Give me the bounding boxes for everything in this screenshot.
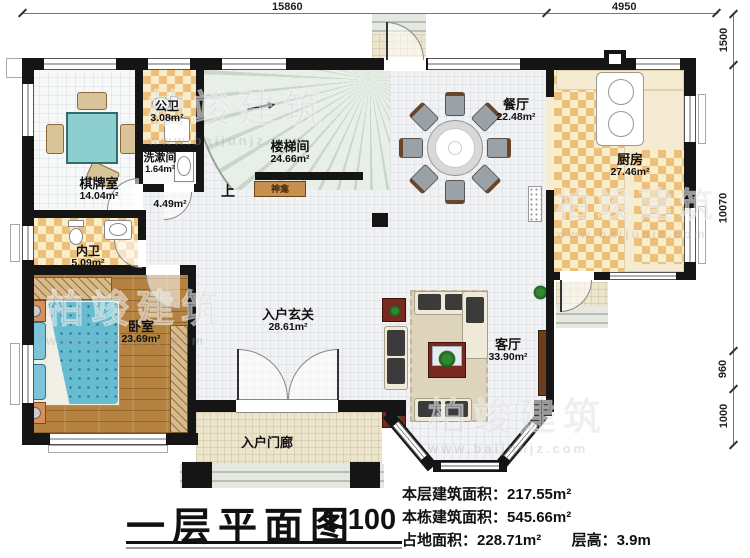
sink-bowl xyxy=(608,111,634,137)
dim-line-right xyxy=(733,13,734,445)
room-label-porch: 入户门廊 xyxy=(241,436,293,450)
washroom-sink-bowl xyxy=(177,156,191,176)
room-label-kitchen: 厨房 27.46m² xyxy=(610,153,649,178)
room-label-stairwell: 楼梯间 24.66m² xyxy=(270,140,309,165)
wall-bath-divider xyxy=(135,144,204,152)
room-label-living: 客厅 33.90m² xyxy=(488,338,527,363)
window-bedroom-left xyxy=(22,345,34,403)
room-label-dining: 餐厅 22.48m² xyxy=(496,98,535,123)
room-label-mahjong: 棋牌室 14.04m² xyxy=(79,177,118,202)
front-door-leaf xyxy=(337,349,339,400)
wall-bath-left xyxy=(135,68,143,184)
sill xyxy=(698,94,706,144)
mahjong-chair xyxy=(46,124,64,154)
dim-top-right: 4950 xyxy=(612,1,636,13)
flue-inner xyxy=(609,54,621,64)
window-dining-top xyxy=(428,58,520,70)
window-bath-top xyxy=(148,58,190,70)
front-door-leaf xyxy=(237,349,239,400)
stat-3b-value: 3.9m xyxy=(617,532,651,549)
stairs-beam xyxy=(255,172,363,180)
washroom-door-opening xyxy=(164,184,194,192)
mahjong-chair xyxy=(77,92,107,110)
sofa-cushion xyxy=(445,401,468,417)
closet xyxy=(170,325,188,433)
stat-3a-value: 228.71m² xyxy=(477,532,541,549)
window-kitchen-right1 xyxy=(684,96,696,142)
stat-1-label: 本层建筑面积： xyxy=(402,486,507,503)
bay-window-bottom xyxy=(441,462,499,470)
plant xyxy=(389,305,401,317)
stat-line-2: 本栋建筑面积：545.66m² xyxy=(402,506,571,527)
window-kitchen-right2 xyxy=(684,208,696,262)
column xyxy=(372,213,388,227)
wall-privbath-right xyxy=(138,218,146,240)
sofa-cushion xyxy=(466,297,484,323)
dim-line-top xyxy=(22,13,718,14)
room-label-foyer: 入户玄关 28.61m² xyxy=(262,308,314,333)
front-door-opening xyxy=(236,399,338,413)
sofa-cushion xyxy=(387,358,405,384)
porch-column-right xyxy=(350,462,380,488)
bedroom-door-opening xyxy=(146,265,180,275)
bath-sink-bowl xyxy=(109,223,127,236)
dim-right-3: 960 xyxy=(717,360,729,378)
wall-kitchen-divider-top xyxy=(546,60,554,97)
stat-2-value: 545.66m² xyxy=(507,509,571,526)
wall-bath-right xyxy=(196,68,204,192)
room-label-private-bath: 内卫 5.09m² xyxy=(71,245,104,269)
room-label-washroom: 洗漱间 1.64m² xyxy=(144,153,177,175)
room-label-public-bath: 公卫 3.08m² xyxy=(150,100,183,124)
toilet-tank xyxy=(68,220,84,227)
dim-right-4: 1000 xyxy=(718,404,730,428)
coffee-table-plant xyxy=(438,350,456,368)
sill xyxy=(698,206,706,264)
dining-chair xyxy=(445,92,465,116)
window-privbath-left xyxy=(22,226,34,260)
end-table xyxy=(382,298,406,322)
window-kitchen-bottom xyxy=(610,272,676,280)
title-underline-2 xyxy=(126,547,402,549)
sill xyxy=(10,224,20,262)
dim-tick xyxy=(729,440,738,449)
sill xyxy=(10,343,20,405)
window-stairs-top xyxy=(222,58,286,70)
stat-2-label: 本栋建筑面积： xyxy=(402,509,507,526)
window-kitchen-top xyxy=(636,58,680,70)
wall-mahjong-bottom xyxy=(22,210,146,218)
porch-column-left xyxy=(182,462,212,488)
wall-porch-left xyxy=(196,400,236,412)
wall-top xyxy=(22,58,692,70)
dim-right-2: 10070 xyxy=(717,193,729,224)
floor-plan-canvas: 神龛 xyxy=(0,0,750,558)
scale-label: 1:100 xyxy=(322,504,396,537)
shrine: 神龛 xyxy=(254,181,306,197)
toilet-bowl xyxy=(69,228,83,245)
stat-3a-label: 占地面积： xyxy=(402,532,477,549)
dim-right-1: 1500 xyxy=(718,28,730,52)
dining-table-center xyxy=(448,141,462,155)
stat-line-3: 占地面积：228.71m² 层高：3.9m xyxy=(402,529,651,550)
dining-cabinet xyxy=(528,186,542,222)
window-bedroom-bottom xyxy=(50,433,166,445)
sill xyxy=(48,445,168,453)
kitchen-back-door-leaf xyxy=(560,280,562,312)
dim-top-main: 15860 xyxy=(272,1,303,13)
dining-chair xyxy=(399,138,423,158)
sink-bowl xyxy=(608,79,634,105)
stat-1-value: 217.55m² xyxy=(507,486,571,503)
wardrobe xyxy=(30,277,112,300)
title-underline xyxy=(126,541,402,544)
up-label: 上 xyxy=(221,184,235,199)
sofa-cushion xyxy=(418,401,441,417)
bed-blanket xyxy=(48,302,82,404)
kitchen-doorway-floor xyxy=(546,97,554,190)
wall-living-right xyxy=(546,190,554,412)
room-label-bedroom: 卧室 23.69m² xyxy=(121,320,160,345)
sofa-cushion xyxy=(418,294,441,310)
stairs-arrow-head xyxy=(267,100,276,109)
dining-chair xyxy=(445,180,465,204)
dim-tick xyxy=(712,8,721,17)
back-door-leaf xyxy=(386,22,388,60)
wall-porch-right xyxy=(338,400,392,412)
corridor-area-label: 4.49m² xyxy=(153,199,186,210)
wall-bedroom-right xyxy=(188,265,196,443)
window-mahjong-top xyxy=(44,58,116,70)
mahjong-table xyxy=(66,112,118,164)
shrine-label: 神龛 xyxy=(271,184,289,194)
dining-chair xyxy=(487,138,511,158)
stat-3b-label: 层高： xyxy=(572,532,617,549)
sofa-cushion xyxy=(387,330,405,356)
stat-line-1: 本层建筑面积：217.55m² xyxy=(402,483,571,504)
window-mahjong-left xyxy=(22,84,34,136)
